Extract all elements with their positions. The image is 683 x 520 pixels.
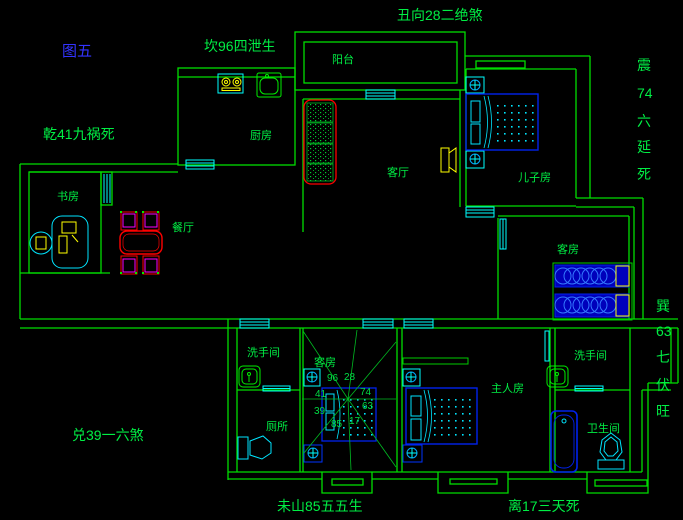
annotation-east-lower: 巽 63 七 伏 旺 — [656, 298, 672, 419]
east-lower-char: 七 — [656, 349, 670, 365]
east-toilet — [598, 433, 624, 469]
room-label-kitchen: 厨房 — [250, 129, 272, 142]
window-corridor-mid1 — [363, 319, 393, 328]
west-sink — [239, 366, 260, 387]
room-label-washroom-west: 洗手间 — [247, 345, 280, 359]
room-label-bathroom: 卫生间 — [587, 421, 620, 435]
annotation-south-right: 离17三天死 — [508, 498, 580, 514]
compass-number: 63 — [362, 401, 374, 412]
east-lower-char: 巽 — [656, 298, 670, 314]
east-upper-char: 死 — [637, 166, 651, 182]
room-label-guest-east: 客房 — [557, 242, 579, 256]
master-bed — [403, 358, 477, 462]
window-corridor-west — [240, 319, 269, 328]
east-lower-char: 旺 — [656, 403, 670, 419]
compass-number: 96 — [327, 373, 339, 384]
annotation-west: 兑39一六煞 — [72, 427, 144, 443]
annotation-top: 丑向28二绝煞 — [397, 7, 483, 23]
room-label-sons-room: 儿子房 — [518, 171, 551, 184]
west-toilet — [238, 436, 271, 459]
east-upper-char: 74 — [637, 85, 653, 101]
annotation-northwest: 乾41九祸死 — [43, 126, 115, 142]
room-label-master: 主人房 — [491, 382, 524, 395]
door-master — [545, 331, 549, 361]
floorplan-drawing: 96 28 41 74 39 63 85 17 — [0, 0, 683, 520]
door-guest-east — [500, 219, 506, 249]
annotation-east-upper: 震 74 六 延 死 — [637, 57, 653, 182]
study-desk — [30, 216, 88, 268]
room-label-balcony: 阳台 — [332, 52, 354, 66]
window-balcony — [366, 90, 395, 99]
room-label-dining: 餐厅 — [172, 220, 194, 234]
compass-number: 41 — [315, 389, 327, 400]
east-lower-char: 63 — [656, 323, 672, 339]
annotation-north: 坎96四泄生 — [204, 38, 276, 54]
room-label-living: 客厅 — [387, 165, 409, 179]
floorplan-canvas: 96 28 41 74 39 63 85 17 — [0, 0, 683, 520]
compass-number: 85 — [331, 419, 343, 430]
compass-number: 39 — [314, 406, 326, 417]
room-label-guest-center: 客房 — [314, 355, 336, 369]
east-upper-char: 震 — [637, 57, 651, 73]
east-upper-char: 延 — [637, 139, 651, 155]
room-label-washroom-east: 洗手间 — [574, 348, 607, 362]
compass-number: 17 — [349, 416, 361, 427]
compass-number: 74 — [360, 387, 372, 398]
figure-title: 图五 — [62, 43, 92, 60]
window-sons-room — [466, 207, 494, 217]
annotation-south-left: 未山85五五生 — [277, 498, 363, 514]
sons-bed — [466, 77, 538, 168]
room-label-toilet: 厕所 — [266, 420, 288, 433]
dining-set — [120, 211, 162, 274]
sofa — [304, 100, 336, 184]
door-study — [104, 174, 110, 203]
compass-number: 28 — [344, 372, 356, 383]
guest-beds — [553, 263, 632, 320]
window-corridor-mid2 — [404, 319, 433, 328]
east-upper-char: 六 — [637, 113, 651, 129]
east-lower-char: 伏 — [656, 377, 670, 393]
room-label-study: 书房 — [57, 190, 79, 203]
speaker — [441, 148, 456, 172]
dining-chairs — [120, 211, 159, 274]
